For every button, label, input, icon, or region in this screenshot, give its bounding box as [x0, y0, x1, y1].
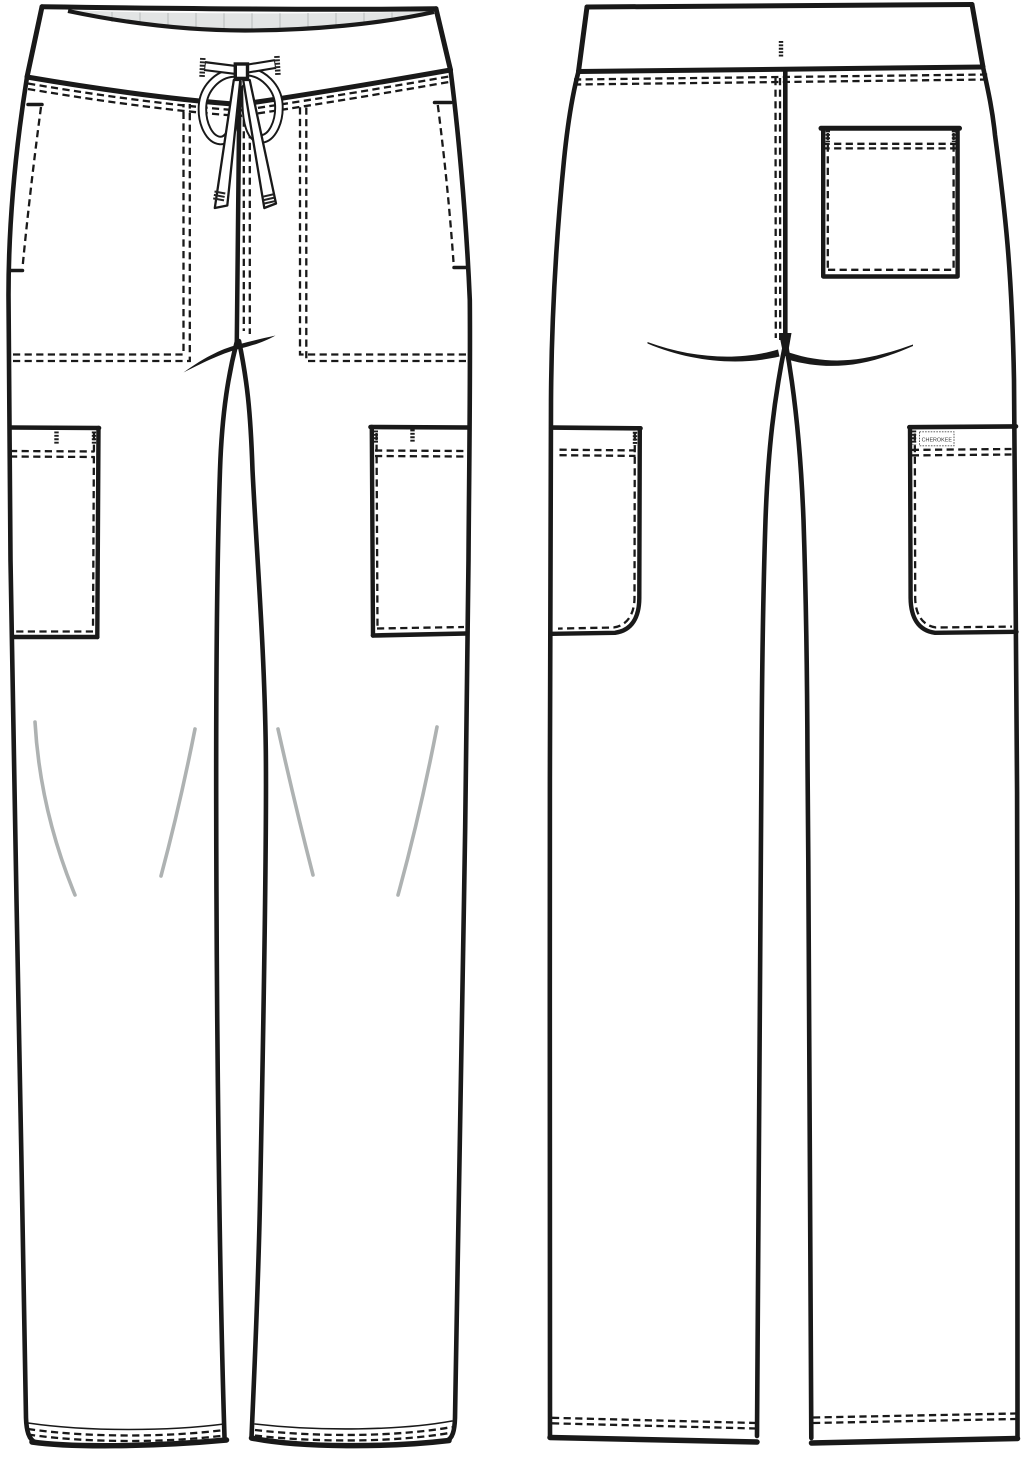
- svg-text:CHEROKEE: CHEROKEE: [922, 437, 953, 443]
